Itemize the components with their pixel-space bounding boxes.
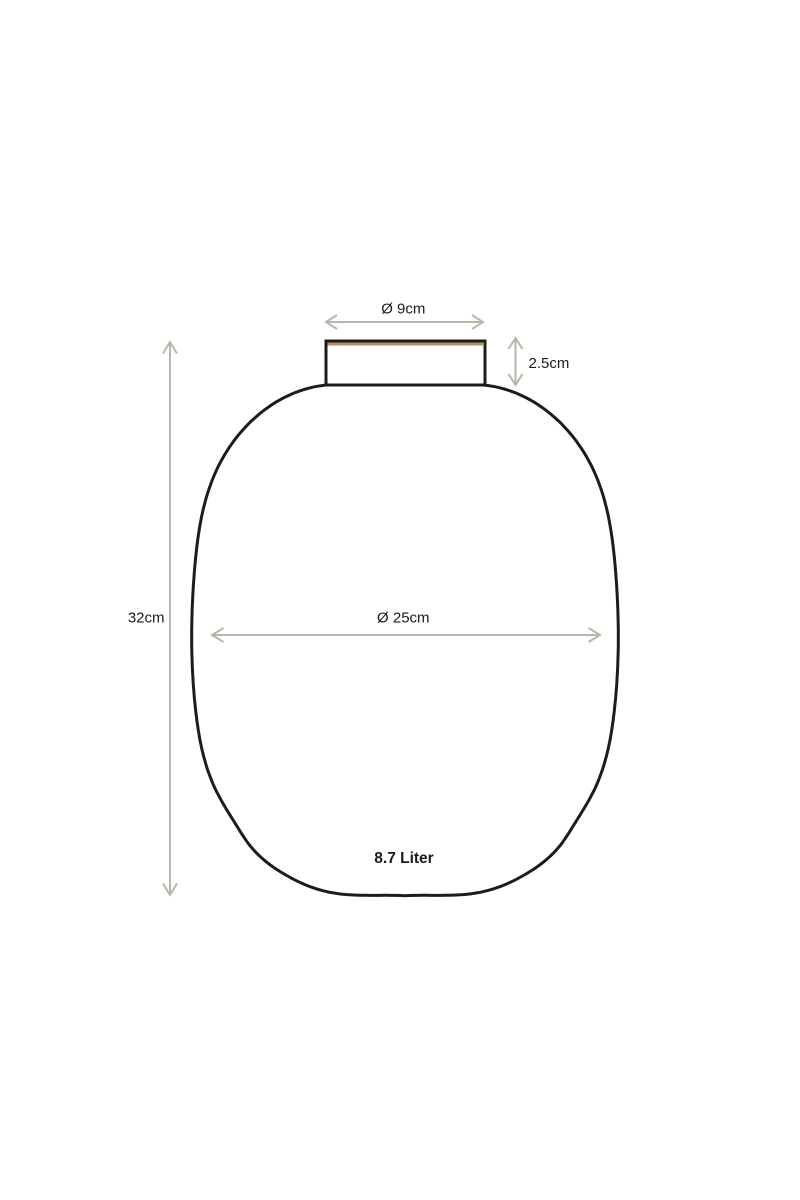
svg-text:Ø 25cm: Ø 25cm (377, 609, 430, 626)
svg-text:32cm: 32cm (128, 610, 165, 627)
svg-text:Ø 9cm: Ø 9cm (381, 300, 425, 317)
svg-text:8.7 Liter: 8.7 Liter (374, 850, 433, 867)
svg-text:2.5cm: 2.5cm (529, 355, 570, 372)
